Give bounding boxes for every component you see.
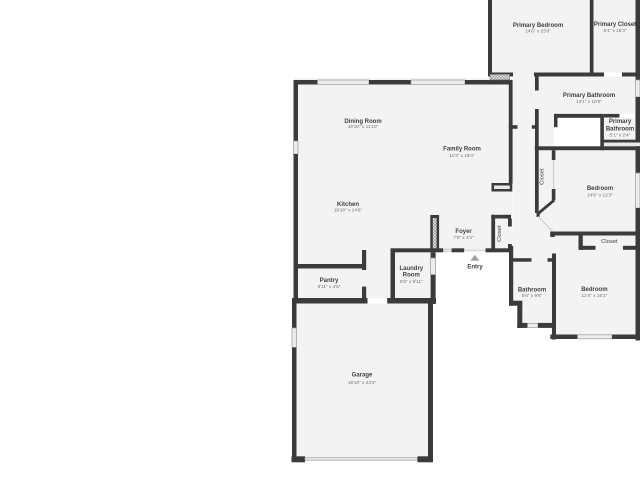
svg-text:Room: Room (403, 272, 420, 278)
svg-text:5'6" x 9'6": 5'6" x 9'6" (522, 293, 543, 298)
svg-text:Family Room: Family Room (443, 147, 481, 153)
svg-text:9'11" x 4'6": 9'11" x 4'6" (318, 284, 341, 289)
svg-text:Entry: Entry (467, 265, 483, 271)
svg-text:19'10" x 11'10": 19'10" x 11'10" (348, 124, 379, 129)
svg-text:Closet: Closet (601, 239, 618, 245)
svg-text:14'6" x 12'3": 14'6" x 12'3" (587, 193, 613, 198)
svg-text:Closet: Closet (497, 225, 503, 242)
svg-text:19'10" x 14'6": 19'10" x 14'6" (334, 208, 363, 213)
svg-text:5'6" x 6'11": 5'6" x 6'11" (400, 279, 423, 284)
svg-text:19'10" x 23'4": 19'10" x 23'4" (348, 380, 377, 385)
svg-text:11'3" x 19'4": 11'3" x 19'4" (449, 153, 475, 158)
svg-text:12'4" x 15'1": 12'4" x 15'1" (582, 293, 608, 298)
svg-text:Primary: Primary (609, 119, 632, 125)
svg-text:14'1" x 10'5": 14'1" x 10'5" (576, 99, 602, 104)
svg-text:Laundry: Laundry (399, 266, 423, 272)
svg-text:7'8" x 4'1": 7'8" x 4'1" (453, 235, 474, 240)
svg-text:6'1" x 15'3": 6'1" x 15'3" (603, 28, 626, 33)
svg-text:Garage: Garage (352, 373, 373, 379)
svg-text:Closet: Closet (540, 168, 546, 185)
svg-text:14'6" x 23'6": 14'6" x 23'6" (525, 28, 551, 33)
svg-text:5'1" x 2'4": 5'1" x 2'4" (610, 133, 631, 138)
svg-text:Bedroom: Bedroom (587, 186, 613, 192)
